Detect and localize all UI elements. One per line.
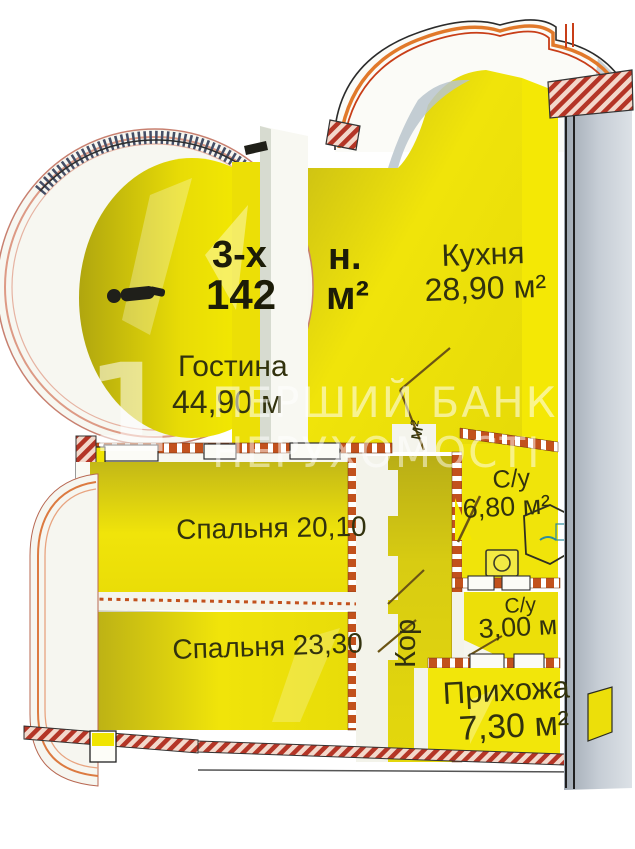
corridor-label: Кор [392,619,421,668]
bedroom1-label: Спальня 20,10 [176,513,367,544]
hallway-area: 7,30 м² [458,706,570,746]
title-rooms-right: н. [328,238,362,276]
window-block [470,654,504,669]
watermark-line2: НЕРУХОМОСТІ [212,432,542,474]
kitchen-label: Кухня [441,237,525,271]
title-rooms-left: 3-х [212,236,267,274]
kitchen-area: 28,90 м² [424,270,547,306]
watermark-logo: 1 [86,348,171,470]
title-area-left: 142 [206,274,276,316]
title-area-right: м² [326,276,369,316]
floorplan-screenshot: 3-х н. 142 м² Кухня 28,90 м² Гостина 44,… [0,0,635,849]
window-block [468,576,494,590]
washing-machine-icon [486,550,518,576]
bathroom1-area: 6,80 м² [462,491,551,523]
entrance-door [588,687,612,741]
bedroom2-label: Спальня 23,30 [172,629,363,664]
watermark-line1: ПЕРШИЙ БАНК [212,382,558,424]
bathroom2-area: 3,00 м [478,612,558,643]
window-block [514,654,544,669]
window-block [502,576,530,590]
hallway-label: Прихожа [442,671,570,709]
